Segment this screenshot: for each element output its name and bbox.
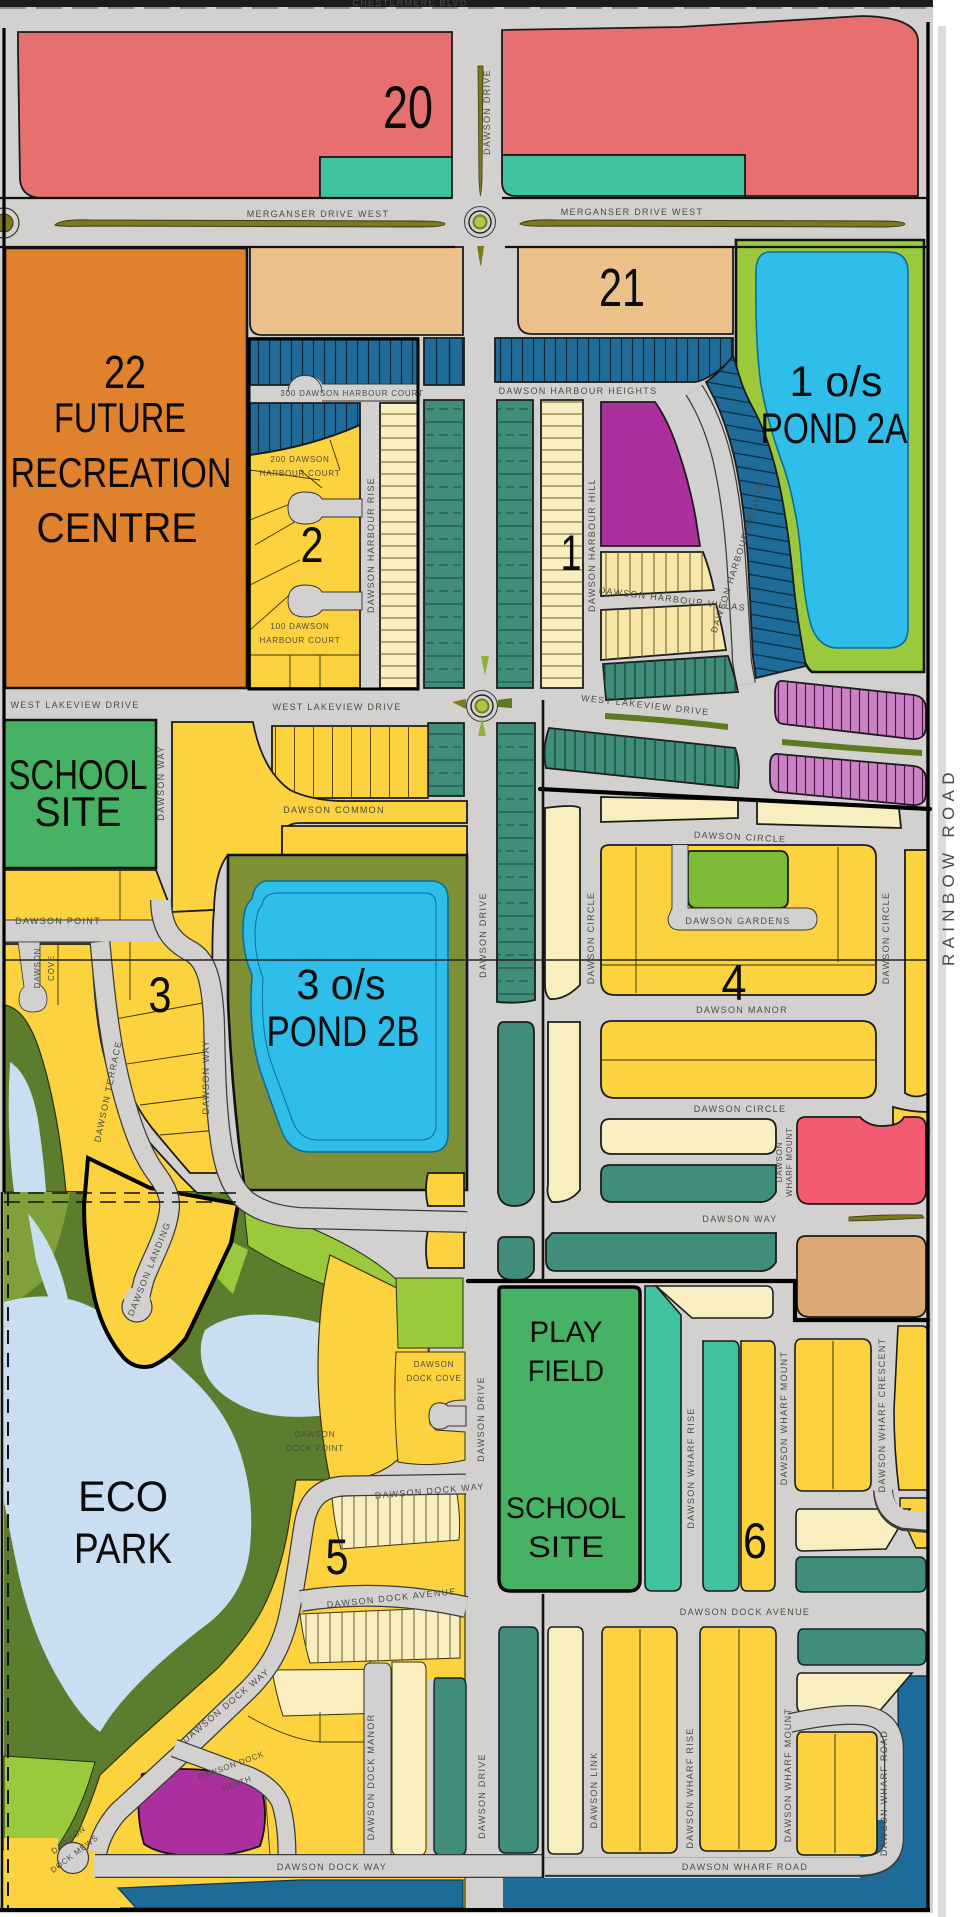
svg-text:DAWSON DOCK AVENUE: DAWSON DOCK AVENUE [680, 1607, 810, 1617]
svg-text:DAWSON COMMON: DAWSON COMMON [283, 805, 385, 815]
svg-text:20: 20 [383, 74, 433, 141]
svg-text:POND 2A: POND 2A [761, 405, 908, 453]
svg-text:COVE: COVE [47, 955, 56, 981]
svg-text:MERGANSER DRIVE WEST: MERGANSER DRIVE WEST [247, 209, 390, 219]
svg-text:1 o/s: 1 o/s [790, 358, 883, 406]
svg-text:DAWSON DRIVE: DAWSON DRIVE [478, 892, 488, 978]
svg-text:WEST LAKEVIEW DRIVE: WEST LAKEVIEW DRIVE [272, 702, 401, 712]
svg-text:2: 2 [301, 517, 324, 573]
svg-text:HARBOUR COURT: HARBOUR COURT [260, 469, 341, 478]
svg-text:1: 1 [561, 525, 582, 581]
svg-text:DOCK COVE: DOCK COVE [406, 1374, 461, 1383]
svg-text:DAWSON HARBOUR HEIGHTS: DAWSON HARBOUR HEIGHTS [499, 386, 658, 396]
svg-text:DAWSON DRIVE: DAWSON DRIVE [476, 1376, 486, 1462]
svg-text:6: 6 [743, 1513, 767, 1569]
svg-text:DAWSON WHARF MOUNT: DAWSON WHARF MOUNT [779, 1351, 789, 1486]
svg-text:PLAY: PLAY [530, 1316, 603, 1349]
svg-text:DAWSON LINK: DAWSON LINK [589, 1752, 599, 1829]
svg-text:21: 21 [599, 258, 645, 318]
svg-text:DOCK POINT: DOCK POINT [286, 1444, 344, 1453]
svg-text:MERGANSER DRIVE WEST: MERGANSER DRIVE WEST [561, 207, 704, 217]
svg-text:FIELD: FIELD [528, 1355, 604, 1388]
svg-text:SITE: SITE [35, 788, 122, 835]
svg-text:DAWSON: DAWSON [775, 1142, 784, 1183]
svg-text:RECREATION: RECREATION [11, 449, 232, 496]
svg-text:3: 3 [149, 967, 172, 1023]
svg-text:DAWSON WAY: DAWSON WAY [156, 745, 166, 820]
svg-text:DAWSON HARBOUR RISE: DAWSON HARBOUR RISE [366, 477, 376, 613]
svg-text:DAWSON WHARF RISE: DAWSON WHARF RISE [685, 1727, 695, 1848]
svg-text:DAWSON: DAWSON [414, 1360, 455, 1369]
svg-text:CHESTERMERE BLVD: CHESTERMERE BLVD [352, 0, 467, 8]
svg-text:200 DAWSON: 200 DAWSON [270, 455, 329, 464]
svg-text:DAWSON WHARF MOUNT: DAWSON WHARF MOUNT [783, 1708, 793, 1843]
svg-text:DAWSON POINT: DAWSON POINT [15, 916, 101, 926]
svg-text:WEST LAKEVIEW DRIVE: WEST LAKEVIEW DRIVE [10, 700, 139, 710]
svg-text:POND 2B: POND 2B [267, 1008, 420, 1056]
svg-text:DAWSON CIRCLE: DAWSON CIRCLE [881, 892, 891, 985]
svg-text:DAWSON HARBOUR HILL: DAWSON HARBOUR HILL [587, 478, 597, 612]
svg-text:DAWSON: DAWSON [295, 1430, 336, 1439]
svg-text:DAWSON WAY: DAWSON WAY [201, 1039, 211, 1114]
svg-text:DAWSON GARDENS: DAWSON GARDENS [685, 916, 790, 926]
svg-text:4: 4 [722, 955, 747, 1011]
svg-text:DAWSON CIRCLE: DAWSON CIRCLE [694, 1104, 787, 1114]
svg-text:DAWSON DOCK WAY: DAWSON DOCK WAY [277, 1862, 387, 1872]
svg-text:DAWSON CIRCLE: DAWSON CIRCLE [586, 892, 596, 985]
svg-text:DAWSON WHARF RISE: DAWSON WHARF RISE [686, 1407, 696, 1528]
svg-text:22: 22 [104, 346, 146, 398]
svg-text:FUTURE: FUTURE [54, 394, 186, 441]
svg-text:DAWSON WHARF ROAD: DAWSON WHARF ROAD [879, 1730, 889, 1856]
svg-text:DAWSON DRIVE: DAWSON DRIVE [482, 69, 492, 155]
svg-text:DAWSON WHARF ROAD: DAWSON WHARF ROAD [682, 1862, 808, 1872]
svg-text:ECO: ECO [78, 1473, 168, 1521]
svg-text:3 o/s: 3 o/s [297, 961, 386, 1009]
svg-text:100 DAWSON: 100 DAWSON [270, 622, 329, 631]
svg-text:300 DAWSON HARBOUR COURT: 300 DAWSON HARBOUR COURT [280, 389, 423, 398]
svg-text:5: 5 [326, 1529, 349, 1585]
svg-text:DAWSON WHARF CRESCENT: DAWSON WHARF CRESCENT [877, 1338, 887, 1493]
svg-text:DAWSON DOCK MANOR: DAWSON DOCK MANOR [366, 1714, 376, 1841]
svg-text:WHARF MOUNT: WHARF MOUNT [785, 1127, 794, 1197]
svg-text:SCHOOL: SCHOOL [506, 1492, 626, 1525]
svg-text:HARBOUR COURT: HARBOUR COURT [260, 636, 341, 645]
svg-text:RAINBOW ROAD: RAINBOW ROAD [939, 770, 958, 966]
svg-text:DAWSON: DAWSON [33, 948, 42, 989]
svg-text:SITE: SITE [528, 1531, 604, 1564]
svg-text:CENTRE: CENTRE [37, 504, 198, 551]
svg-text:DAWSON WAY: DAWSON WAY [702, 1214, 777, 1224]
svg-text:PARK: PARK [74, 1525, 172, 1573]
svg-text:DAWSON DRIVE: DAWSON DRIVE [477, 1753, 487, 1839]
